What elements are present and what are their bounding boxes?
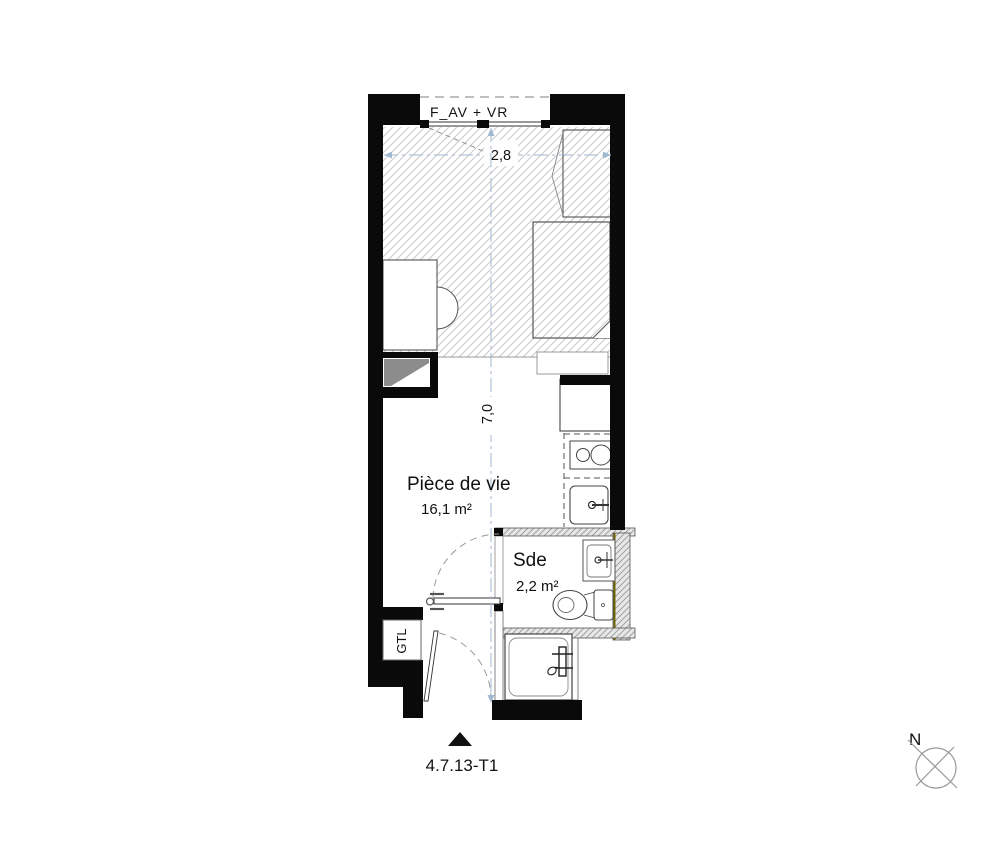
living-room-name: Pièce de vie xyxy=(407,474,511,495)
sde-door-leaf xyxy=(434,598,500,604)
washbasin xyxy=(583,540,615,581)
entry-door-swing-arc xyxy=(439,633,491,699)
bench xyxy=(537,352,608,374)
kitchen-wall-stub xyxy=(560,375,613,385)
right-wall xyxy=(610,125,625,530)
shower-screen xyxy=(572,638,578,700)
bottom-wall xyxy=(492,700,582,720)
gtl-niche: GTL xyxy=(383,620,421,660)
toilet-tank xyxy=(594,590,613,620)
entry-door xyxy=(424,631,491,701)
living-room-area: 16,1 m² xyxy=(421,501,472,518)
desk xyxy=(383,260,437,350)
sde-door xyxy=(427,534,501,609)
shower xyxy=(505,634,573,700)
floor-plan-page: GTL F_AV + VR 2,8 7,0 Pièce de vie 16,1 … xyxy=(0,0,1000,857)
shower-mixer xyxy=(559,647,566,676)
sde-door-frame xyxy=(495,536,503,604)
toilet xyxy=(553,590,613,620)
kitchen-sink xyxy=(570,486,609,524)
dimension-depth-label: 7,0 xyxy=(480,404,496,424)
dimension-width-label: 2,8 xyxy=(491,148,511,164)
bathroom-label: Sde 2,2 m² xyxy=(513,550,559,595)
floor-plan-svg: GTL F_AV + VR 2,8 7,0 Pièce de vie 16,1 … xyxy=(0,0,1000,857)
plan-reference: 4.7.13-T1 xyxy=(426,732,499,775)
hinge-block-top xyxy=(494,528,503,536)
fridge-counter xyxy=(560,379,611,431)
window-mullion xyxy=(477,120,489,128)
living-room-label: Pièce de vie 16,1 m² xyxy=(407,474,511,518)
triangle-marker-icon xyxy=(448,732,472,746)
window-label: F_AV + VR xyxy=(430,104,508,120)
cooktop xyxy=(570,441,612,469)
plan-reference-label: 4.7.13-T1 xyxy=(426,756,499,775)
bathroom-name: Sde xyxy=(513,550,547,571)
left-wall xyxy=(368,125,383,687)
north-indicator: N xyxy=(908,730,957,788)
north-label: N xyxy=(909,730,921,749)
sde-door-swing-arc xyxy=(433,534,499,598)
gtl-label: GTL xyxy=(394,628,409,653)
bathroom-area: 2,2 m² xyxy=(516,578,559,595)
entry-door-leaf xyxy=(424,631,438,701)
